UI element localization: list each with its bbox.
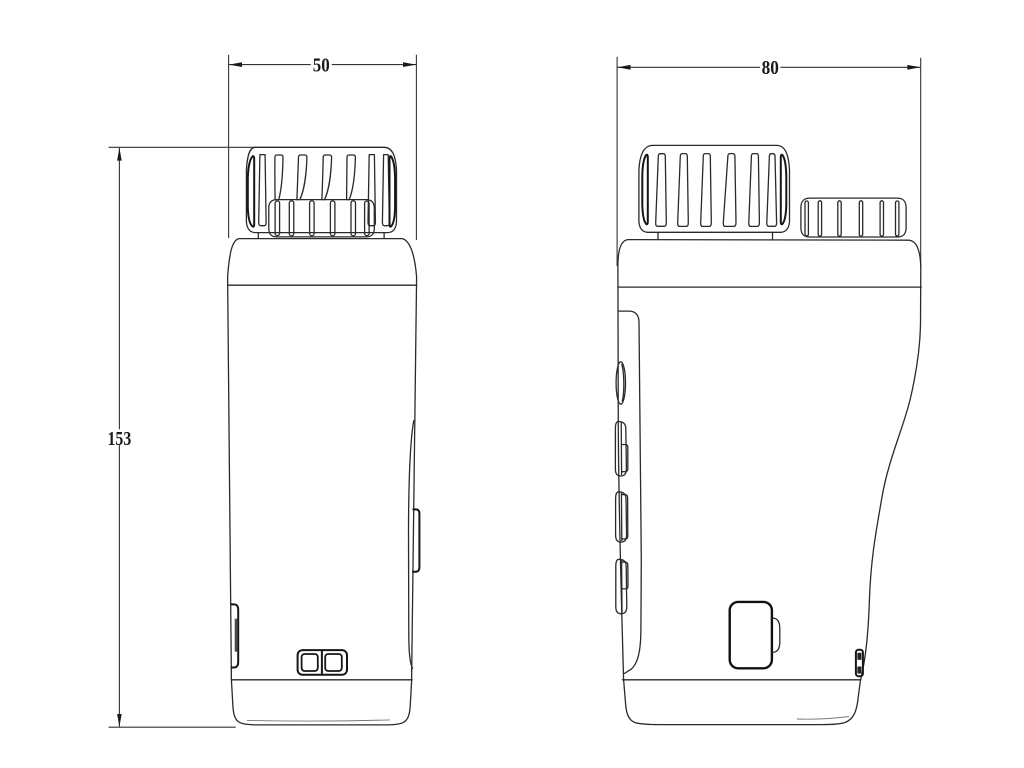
svg-text:153: 153	[108, 428, 132, 450]
svg-text:50: 50	[313, 54, 330, 76]
svg-text:80: 80	[762, 57, 779, 79]
